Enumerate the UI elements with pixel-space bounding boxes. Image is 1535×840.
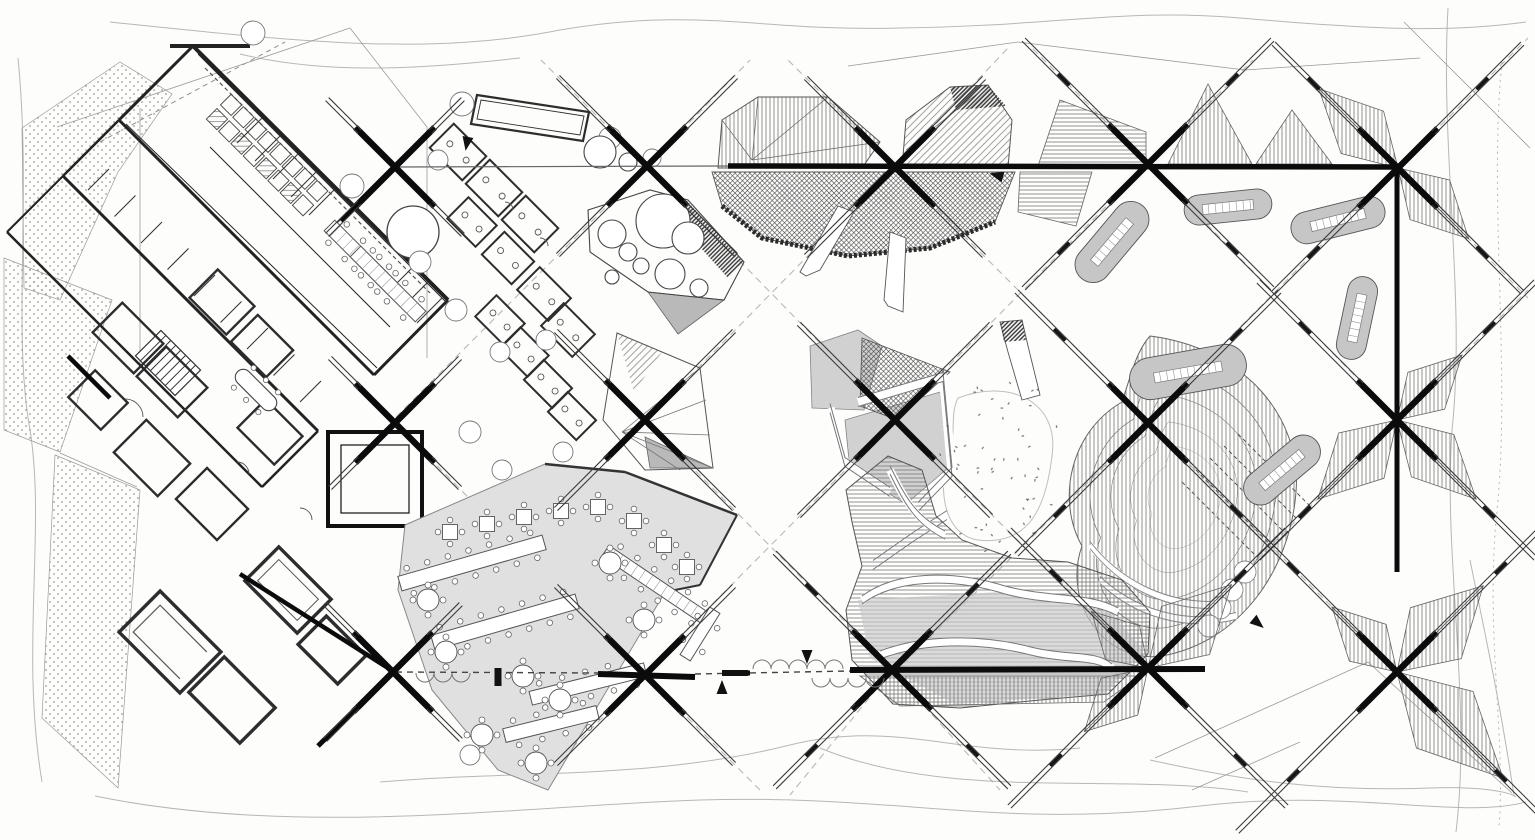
site-plan-svg [0, 0, 1535, 840]
architectural-plan-canvas [0, 0, 1535, 840]
